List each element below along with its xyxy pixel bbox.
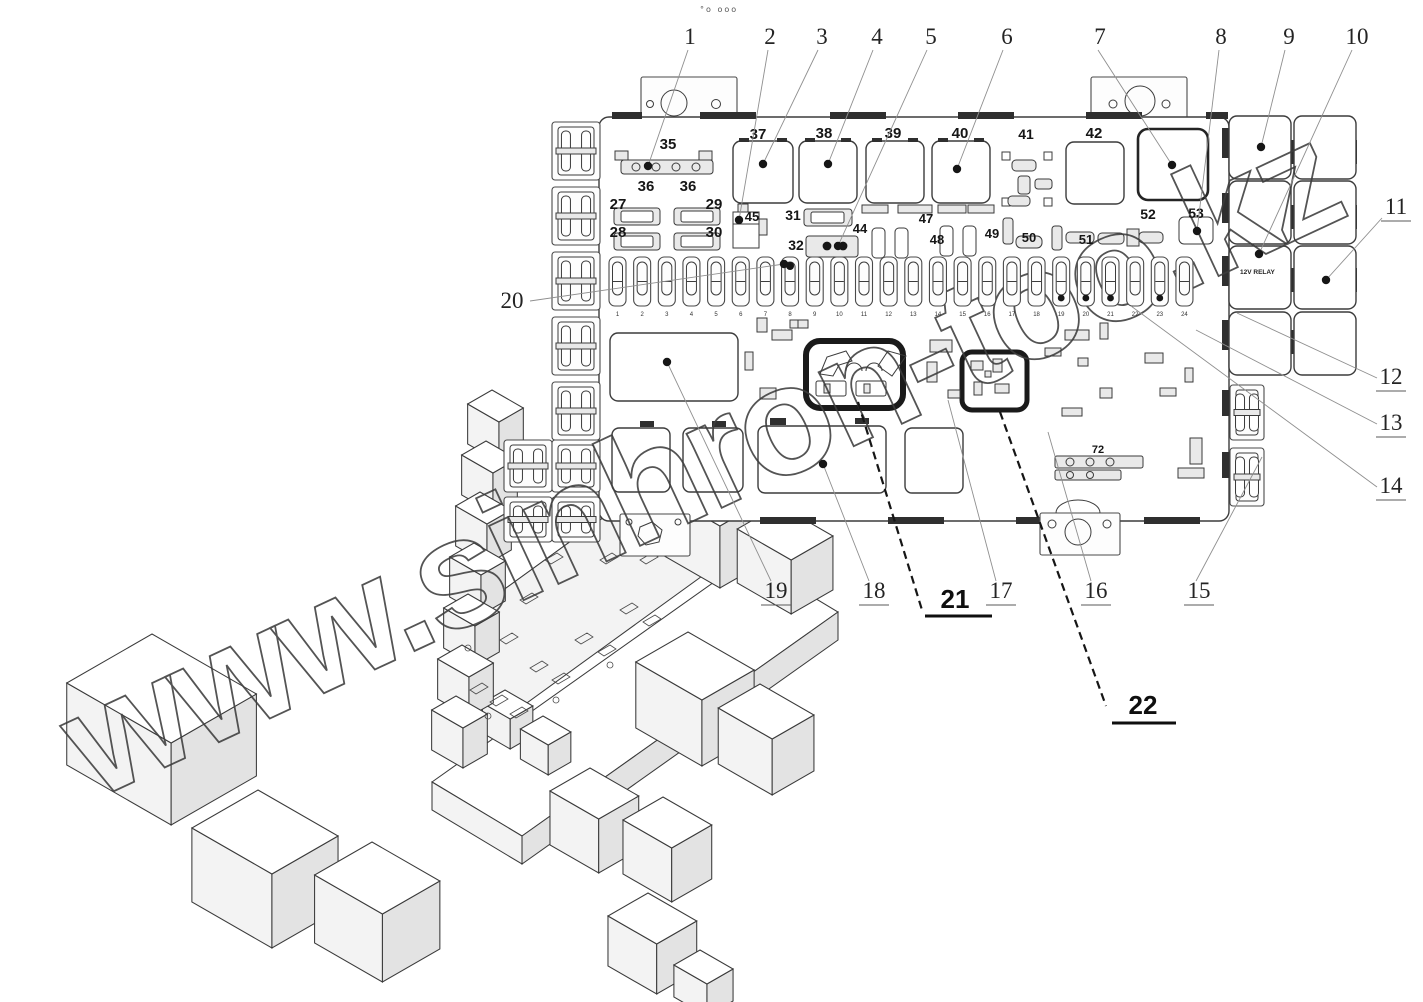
callout-dot-3: [759, 160, 767, 168]
relay-40: [932, 138, 990, 203]
callout-number-16: 16: [1085, 578, 1108, 603]
callout-number-20: 20: [501, 288, 524, 313]
part-label-72: 72: [1092, 444, 1104, 456]
callout-number-17: 17: [990, 578, 1013, 603]
callout-number-13: 13: [1380, 410, 1403, 435]
fuse-number: 11: [861, 312, 868, 318]
fuse-number: 18: [1033, 312, 1040, 318]
part-label-28: 28: [610, 224, 627, 241]
callout-number-3: 3: [816, 24, 828, 49]
iso-relay-cube: [623, 797, 712, 902]
callout-dot-2: [735, 216, 743, 224]
callout-number-10: 10: [1346, 24, 1369, 49]
callout-number-18: 18: [863, 578, 886, 603]
callout-number-1: 1: [684, 24, 696, 49]
callout-dot-7: [1168, 161, 1176, 169]
fuse-number: 24: [1181, 312, 1188, 318]
relay-38: [799, 138, 857, 203]
edge-tick: [1144, 517, 1200, 524]
callout-dot-20: [780, 260, 788, 268]
fuse-31: [804, 209, 852, 226]
part-label-27: 27: [610, 196, 627, 213]
part-label-42: 42: [1086, 125, 1103, 142]
edge-tick: [888, 517, 944, 524]
part-label-45: 45: [745, 209, 759, 224]
fuse-number: 12: [885, 312, 892, 318]
fuse-32: [806, 236, 858, 257]
relay-grid-cell: [1229, 312, 1291, 375]
part-label-49: 49: [985, 226, 999, 241]
part-label-44: 44: [853, 221, 868, 236]
part-label-35: 35: [660, 136, 677, 153]
fuse-number: 16: [984, 312, 991, 318]
callout-dot-10: [1255, 250, 1263, 258]
fuse-number: 10: [836, 312, 843, 318]
callout-number-9: 9: [1283, 24, 1295, 49]
part-label-36: 36: [638, 178, 655, 195]
part-label-39: 39: [885, 125, 902, 142]
relay-39: [866, 138, 924, 203]
callout-dot-9: [1257, 143, 1265, 151]
fuse-number: 19: [1058, 312, 1065, 318]
fuse-number: 22: [1132, 312, 1139, 318]
callout-number-11: 11: [1385, 194, 1407, 219]
h-connector: [1230, 385, 1264, 440]
fuse-number: 14: [935, 312, 942, 318]
callout-number-19: 19: [765, 578, 788, 603]
edge-tick: [958, 112, 1014, 119]
fuse-number: 15: [959, 312, 966, 318]
edge-tick: [1086, 112, 1142, 119]
callout-number-7: 7: [1094, 24, 1106, 49]
fuse-number: 23: [1156, 312, 1163, 318]
callout-number-12: 12: [1380, 364, 1403, 389]
callout-number-8: 8: [1215, 24, 1227, 49]
callout-dot-18: [819, 460, 827, 468]
part-label-48: 48: [930, 232, 944, 247]
part-label-36: 36: [680, 178, 697, 195]
callout-dot-5: [834, 242, 842, 250]
h-connector: [552, 252, 600, 310]
part-label-32: 32: [788, 237, 804, 253]
callout-number-5: 5: [925, 24, 937, 49]
part-label-29: 29: [706, 196, 723, 213]
part-label-52: 52: [1140, 206, 1156, 222]
part-label-47: 47: [919, 211, 933, 226]
callout-dot-8: [1193, 227, 1201, 235]
fuse-number: 17: [1009, 312, 1016, 318]
edge-tick: [612, 112, 642, 119]
part-label-41: 41: [1018, 126, 1034, 142]
callout-number-4: 4: [871, 24, 883, 49]
callout-dot-1: [644, 162, 652, 170]
part-label-30: 30: [706, 224, 723, 241]
h-connector: [1230, 448, 1264, 506]
fuse-number: 20: [1083, 312, 1090, 318]
diagram-stage: www.sinhron-too.kz °o ooo 12V RELAY 1234…: [0, 0, 1423, 1002]
part-label-50: 50: [1022, 230, 1036, 245]
edge-tick: [830, 112, 886, 119]
edge-tick: [700, 112, 756, 119]
callout-dot-11: [1322, 276, 1330, 284]
callout-dot-6: [953, 165, 961, 173]
fuse-number: 21: [1107, 312, 1114, 318]
callout-number-21: 21: [941, 584, 970, 614]
part-label-31: 31: [785, 207, 801, 223]
callout-number-6: 6: [1001, 24, 1013, 49]
top-artifact-text: °o ooo: [700, 5, 738, 14]
fuse-number: 13: [910, 312, 917, 318]
h-connector: [552, 122, 600, 180]
part-label-53: 53: [1188, 205, 1204, 221]
callout-number-15: 15: [1188, 578, 1211, 603]
callout-dot-19: [663, 358, 671, 366]
callout-number-2: 2: [764, 24, 776, 49]
relay-cell-text: 12V RELAY: [1240, 269, 1275, 276]
callout-dot-4: [824, 160, 832, 168]
part-label-40: 40: [952, 125, 969, 142]
grid-separator: [1222, 452, 1230, 478]
callout-number-22: 22: [1129, 690, 1158, 720]
part-label-51: 51: [1079, 232, 1093, 247]
relay-37: [733, 138, 793, 203]
callout-number-14: 14: [1380, 473, 1404, 498]
iso-relay-cube: [718, 684, 814, 795]
part-label-38: 38: [816, 125, 833, 142]
h-connector: [552, 187, 600, 245]
grid-separator: [1222, 390, 1230, 416]
h-connector: [552, 317, 600, 375]
fusebox-diagram: www.sinhron-too.kz °o ooo 12V RELAY 1234…: [0, 0, 1423, 1002]
